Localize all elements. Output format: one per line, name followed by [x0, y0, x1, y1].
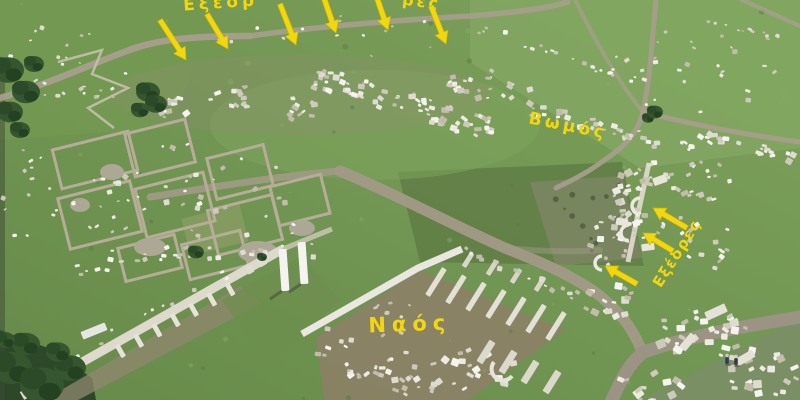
tree	[24, 56, 44, 72]
tree	[188, 246, 204, 259]
tree	[10, 122, 30, 138]
tree	[12, 81, 40, 103]
annotated-aerial-photo: ΕξέδρρεςΒωμόςΝαόςΕξέδρες	[0, 0, 800, 400]
label-naos: Ναός	[368, 311, 452, 338]
rubble-mound	[100, 164, 124, 180]
tree	[642, 113, 654, 123]
tree	[131, 103, 149, 117]
tree	[12, 333, 40, 355]
tree	[46, 342, 70, 361]
rubble-mound	[134, 238, 166, 256]
tree	[257, 253, 267, 261]
aerial-photo-canvas: ΕξέδρρεςΒωμόςΝαόςΕξέδρες	[0, 0, 800, 400]
dirt-path	[505, 248, 600, 251]
